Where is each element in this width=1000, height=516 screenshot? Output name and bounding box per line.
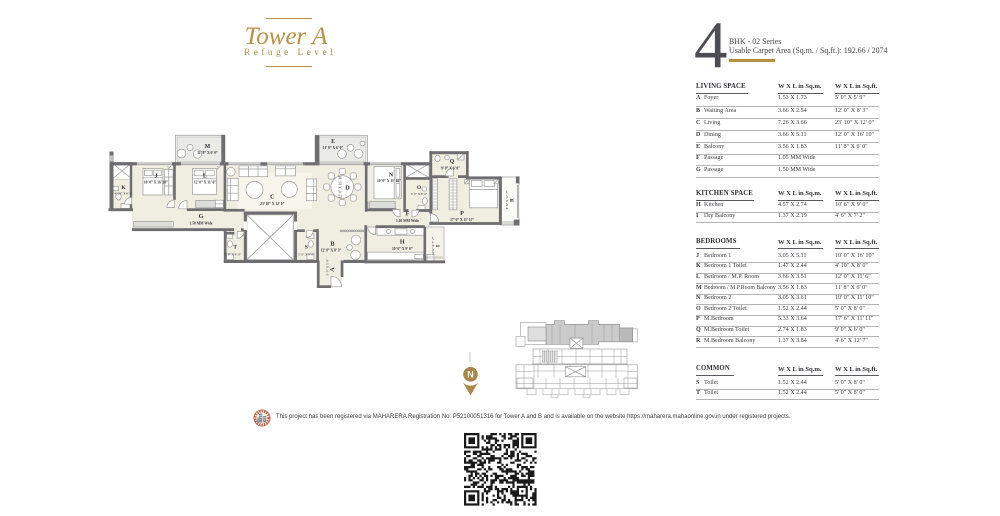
- svg-text:T: T: [233, 245, 237, 251]
- svg-text:4’ 6” X 7’ 2”: 4’ 6” X 7’ 2”: [431, 236, 435, 254]
- svg-text:12’ 0” X 8’ 3”: 12’ 0” X 8’ 3”: [321, 249, 342, 253]
- svg-text:O: O: [417, 185, 422, 191]
- svg-text:Q: Q: [450, 159, 455, 165]
- svg-text:5’ 0” X 5’ 9”: 5’ 0” X 5’ 9”: [325, 258, 329, 276]
- svg-text:S: S: [305, 245, 308, 251]
- svg-text:12’ 0” X 11’ 6”: 12’ 0” X 11’ 6”: [194, 181, 216, 185]
- svg-text:M: M: [205, 144, 211, 150]
- svg-text:1.05 MM Wide: 1.05 MM Wide: [396, 219, 419, 223]
- svg-text:11’ 8” X 6’ 0”: 11’ 8” X 6’ 0”: [197, 151, 218, 155]
- svg-text:N: N: [467, 370, 474, 380]
- svg-text:5’ 0” X 8’ 0”: 5’ 0” X 8’ 0”: [298, 253, 315, 257]
- svg-text:1.50 MM Wide: 1.50 MM Wide: [190, 222, 213, 226]
- svg-text:C: C: [270, 194, 274, 201]
- svg-text:17’ 6” X 11’ 11”: 17’ 6” X 11’ 11”: [450, 218, 474, 222]
- svg-text:K: K: [121, 185, 126, 191]
- svg-text:10’ 0” X 11’ 10”: 10’ 0” X 11’ 10”: [377, 179, 401, 183]
- svg-text:12’ 0” X 16’ 10”: 12’ 0” X 16’ 10”: [339, 174, 343, 198]
- svg-text:5’ 0” X 8’ 0”: 5’ 0” X 8’ 0”: [225, 253, 242, 257]
- svg-text:A: A: [329, 267, 336, 272]
- svg-text:H: H: [400, 239, 405, 246]
- svg-text:11’ 8” X 6’ 0”: 11’ 8” X 6’ 0”: [323, 146, 344, 150]
- svg-text:L: L: [203, 173, 207, 180]
- svg-text:D: D: [345, 184, 350, 191]
- svg-text:10’ 0” X 16’ 10”: 10’ 0” X 16’ 10”: [144, 181, 168, 185]
- svg-text:P: P: [460, 210, 464, 217]
- svg-text:I: I: [436, 245, 442, 247]
- svg-text:5’ 0” X 8’ 0”: 5’ 0” X 8’ 0”: [411, 192, 428, 196]
- svg-text:F: F: [406, 210, 410, 217]
- svg-text:J: J: [154, 173, 157, 180]
- svg-text:9’ 0” X 6’ 0”: 9’ 0” X 6’ 0”: [441, 167, 460, 171]
- svg-text:B: B: [330, 241, 334, 248]
- svg-text:4’ 10” X 8’ 0”: 4’ 10” X 8’ 0”: [115, 192, 134, 196]
- svg-text:4’ 6” X 12’ 7”: 4’ 6” X 12’ 7”: [505, 190, 509, 209]
- svg-text:N: N: [389, 171, 394, 178]
- svg-text:10’ 6” X 9’ 0”: 10’ 6” X 9’ 0”: [392, 247, 413, 251]
- svg-text:R: R: [510, 198, 515, 202]
- svg-text:E: E: [331, 139, 335, 145]
- svg-text:G: G: [199, 213, 204, 220]
- svg-text:23’ 10” X 12’ 0”: 23’ 10” X 12’ 0”: [260, 202, 284, 206]
